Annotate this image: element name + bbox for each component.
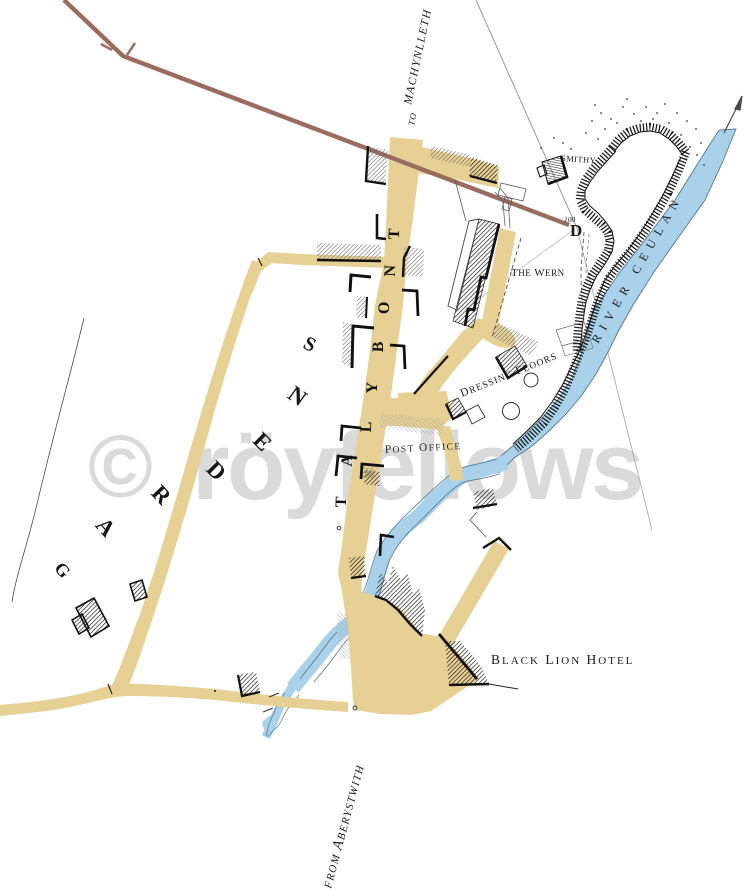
svg-text:A: A [339, 454, 356, 467]
svg-text:BLACK LION HOTEL: BLACK LION HOTEL [491, 652, 634, 667]
svg-text:L: L [358, 421, 375, 432]
svg-text:T: T [386, 228, 403, 240]
svg-text:©: © [88, 417, 153, 516]
svg-text:T: T [333, 496, 350, 508]
svg-text:100: 100 [564, 215, 576, 224]
svg-text:B: B [370, 341, 387, 353]
svg-text:Y: Y [364, 381, 381, 394]
svg-text:O: O [376, 301, 393, 314]
svg-text:THE WERN: THE WERN [511, 267, 565, 279]
svg-text:N: N [382, 264, 399, 277]
